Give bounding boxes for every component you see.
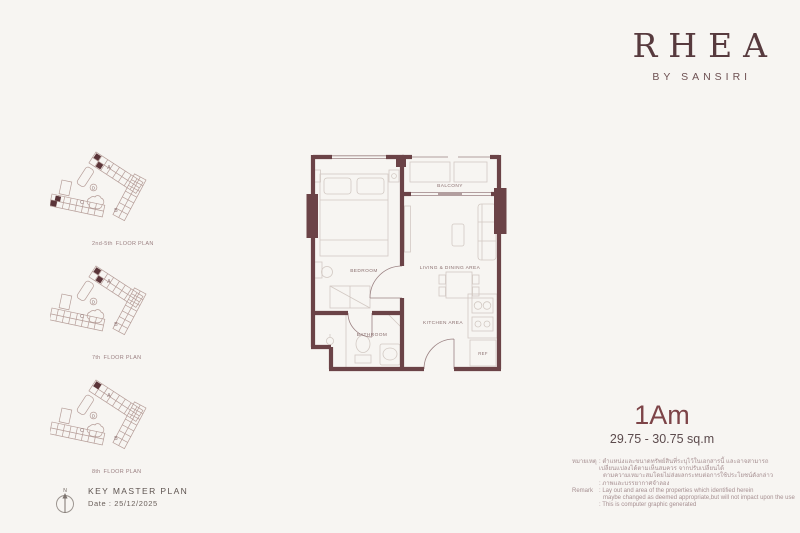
unit-floor-plan: BEDROOM BALCONY LIVING & DINING AREA KIT… [300, 148, 510, 378]
north-label: N [63, 488, 67, 494]
north-arrow-icon: N [52, 486, 78, 516]
column [396, 155, 406, 167]
unit-type: 1Am [576, 400, 748, 431]
remark-en-label: Remark [572, 488, 599, 495]
brand-name: RHEA [621, 26, 778, 65]
key-plan-2nd-5th-icon [50, 150, 170, 232]
key-plan-8th-icon [50, 378, 170, 460]
shower-drain-icon [326, 334, 333, 345]
walls [311, 155, 501, 369]
bathroom-label: BATHROOM [357, 332, 388, 338]
balcony-furniture-icon [410, 162, 487, 182]
bed-icon [314, 170, 400, 256]
bedroom-window [332, 156, 386, 159]
vanity-stool-icon [314, 262, 333, 278]
key-master-plan-date: Date : 25/12/2025 [88, 499, 188, 508]
key-plan-2nd-5th: 2nd-5thFLOOR PLAN [50, 150, 182, 247]
remark-thai-line: : ภาพและบรรยากาศจำลอง [599, 481, 798, 488]
floor-plan-label: FLOOR PLAN [116, 241, 154, 247]
column [494, 188, 507, 234]
living-dining-label: LIVING & DINING AREA [420, 265, 481, 271]
bathroom-sink-icon [380, 344, 400, 365]
bedroom-label: BEDROOM [350, 268, 378, 274]
balcony-label: BALCONY [437, 183, 463, 189]
floor-range: 7th [92, 355, 101, 361]
key-plan-caption: 8thFLOOR PLAN [92, 469, 182, 475]
floor-plan-label: FLOOR PLAN [104, 469, 142, 475]
floor-plan-page: A B C D [0, 0, 800, 533]
key-plan-7th-icon [50, 264, 170, 346]
unit-info: 1Am 29.75 - 30.75 sq.m [576, 400, 748, 446]
key-plan-7th: 7thFLOOR PLAN [50, 264, 182, 361]
key-master-plan-title: KEY MASTER PLAN [88, 486, 188, 496]
floor-range: 8th [92, 469, 101, 475]
key-plan-caption: 7thFLOOR PLAN [92, 355, 182, 361]
remark-thai-label: หมายเหตุ [572, 459, 599, 473]
entry-door-arc [424, 339, 454, 369]
remark-thai-line: ตามความเหมาะสมโดยไม่ส่งผลกระทบต่อการใช้ป… [599, 473, 798, 480]
refrigerator-label: REF [478, 351, 488, 356]
coffee-table-icon [452, 224, 464, 246]
floor-range: 2nd-5th [92, 241, 113, 247]
brand-byline: BY SANSIRI [621, 71, 778, 83]
remark-en-line: maybe changed as deemed appropriate,but … [599, 495, 798, 502]
unit-area: 29.75 - 30.75 sq.m [576, 432, 748, 446]
wardrobe-icon [330, 286, 370, 308]
sofa-icon [478, 204, 496, 260]
kitchen-counter-icon [468, 294, 497, 338]
key-plan-caption: 2nd-5thFLOOR PLAN [92, 241, 182, 247]
tv-console-icon [405, 206, 411, 252]
remark-en-line: : This is computer graphic generated [599, 502, 798, 509]
column [307, 194, 319, 238]
key-master-plan: N KEY MASTER PLAN Date : 25/12/2025 [52, 486, 188, 516]
remark-en-line: : Lay out and area of the properties whi… [599, 488, 798, 495]
toilet-icon [355, 336, 371, 364]
remark-thai-line: : ตำแหน่งและขนาดทรัพย์สินที่ระบุไว้ในเอก… [599, 459, 798, 473]
balcony-sliding-door [404, 193, 499, 196]
kitchen-label: KITCHEN AREA [423, 320, 463, 326]
key-plan-8th: 8thFLOOR PLAN [50, 378, 182, 475]
floor-plan-label: FLOOR PLAN [104, 355, 142, 361]
brand-logo: RHEA BY SANSIRI [621, 26, 778, 83]
remark-block: หมายเหตุ: ตำแหน่งและขนาดทรัพย์สินที่ระบุ… [572, 459, 798, 509]
